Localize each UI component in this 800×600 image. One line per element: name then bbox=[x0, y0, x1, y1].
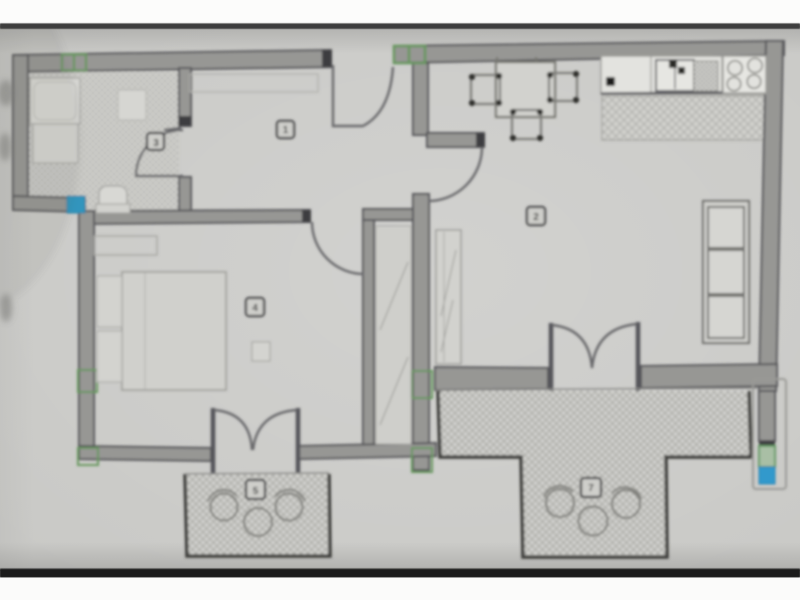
svg-text:1: 1 bbox=[283, 125, 289, 136]
svg-text:7: 7 bbox=[588, 483, 594, 494]
svg-text:3: 3 bbox=[153, 138, 159, 149]
svg-text:4: 4 bbox=[252, 303, 258, 314]
svg-text:5: 5 bbox=[253, 486, 259, 497]
svg-text:2: 2 bbox=[533, 212, 539, 223]
